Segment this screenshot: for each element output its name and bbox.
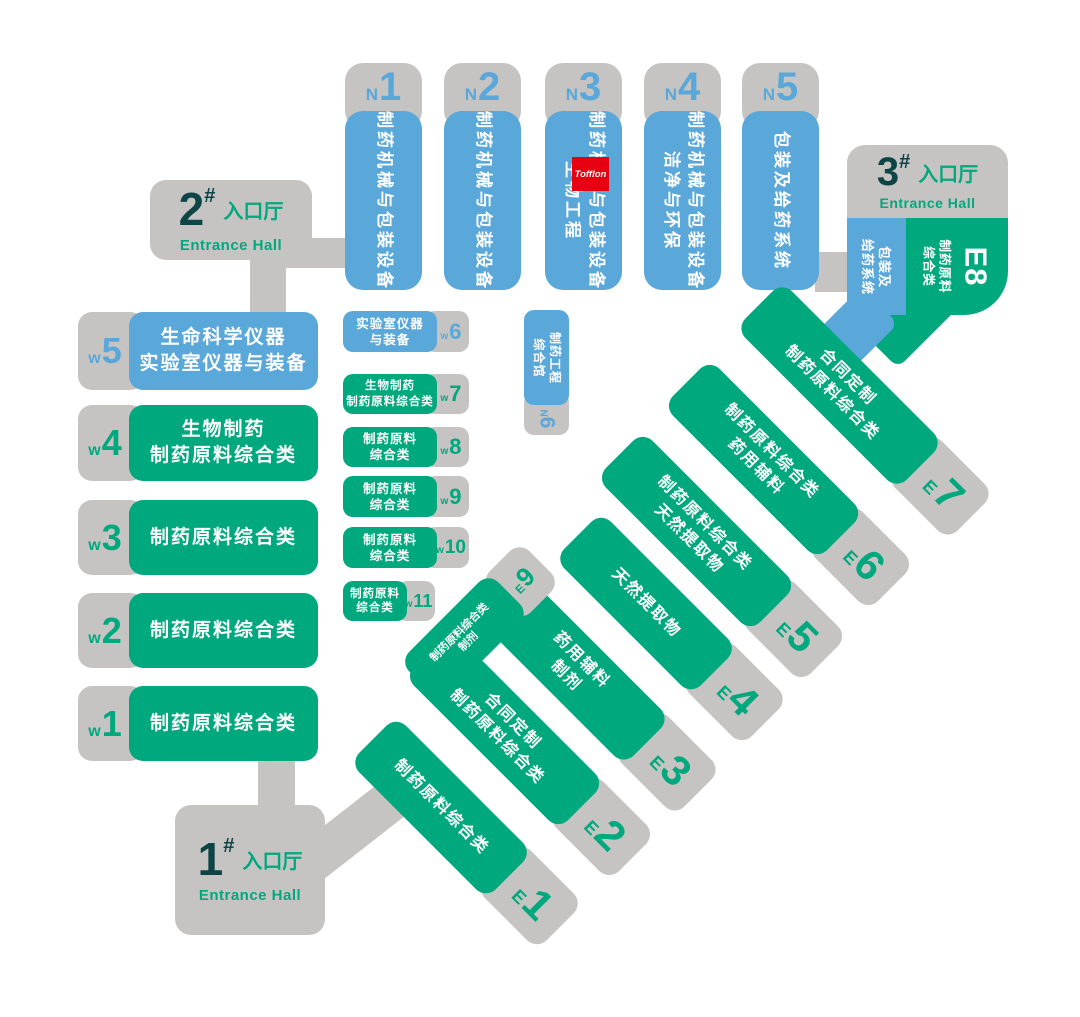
hall-w6-body: 实验室仪器与装备 [343,311,437,352]
hall-n6-body: 制药工程综合馆 [524,310,569,405]
entrance-hall-3: 3#入口厅 Entrance Hall [847,145,1008,218]
hall-w3: w3 制药原料综合类 [78,500,318,575]
hall-w2-body: 制药原料综合类 [129,593,318,668]
hall-w7: 生物制药制药原料综合类 w7 [343,374,469,414]
entrance-1-en: Entrance Hall [199,887,301,904]
hall-w10: 制药原料综合类 w10 [343,527,469,568]
entrance-1-hash: # [223,836,234,856]
hall-n2-body: 制药机械与包装设备 [444,111,521,290]
entrance-1-number: 1 [198,836,224,882]
entrance-2-cn: 入口厅 [223,202,283,222]
entrance-1-cn: 入口厅 [242,852,302,872]
entrance-3-number: 3 [877,152,899,192]
hall-w4-body: 生物制药制药原料综合类 [129,405,318,481]
hall-w5-body: 生命科学仪器实验室仪器与装备 [129,312,318,390]
hall-w4: w4 生物制药制药原料综合类 [78,405,318,481]
entrance-hall-1: 1#入口厅 Entrance Hall [175,805,325,935]
hall-e8-body: E8 制药原料综合类 [906,218,1008,315]
hall-w8-body: 制药原料综合类 [343,427,437,467]
hall-n4: N4 制药机械与包装设备洁净与环保 [644,63,721,290]
hall-e8-label: E8 [957,247,993,287]
hall-w5: w5 生命科学仪器实验室仪器与装备 [78,312,318,390]
tofflon-logo: Tofflon [572,157,609,191]
hall-n1: N1 制药机械与包装设备 [345,63,422,290]
hall-w1: w1 制药原料综合类 [78,686,318,761]
entrance-2-en: Entrance Hall [180,237,282,254]
hall-n3: N3 制药机械与包装设备生物工程 Tofflon [545,63,622,290]
exhibition-floor-plan: N1 制药机械与包装设备 N2 制药机械与包装设备 N3 制药机械与包装设备生物… [0,0,1080,1017]
hall-n5: N5 包装及给药系统 [742,63,819,290]
entrance-hall-2: 2#入口厅 Entrance Hall [150,180,312,260]
connector-w1-entrance1 [258,757,295,810]
hall-n5-body: 包装及给药系统 [742,111,819,290]
hall-n1-body: 制药机械与包装设备 [345,111,422,290]
hall-w2: w2 制药原料综合类 [78,593,318,668]
hall-w6: 实验室仪器与装备 w6 [343,311,469,352]
hall-n6: 制药工程综合馆 N6 [524,310,569,435]
hall-n4-body: 制药机械与包装设备洁净与环保 [644,111,721,290]
entrance-2-number: 2 [179,186,205,232]
hall-w9-body: 制药原料综合类 [343,476,437,517]
hall-w11-body: 制药原料综合类 [343,581,407,621]
hall-w3-body: 制药原料综合类 [129,500,318,575]
hall-w8: 制药原料综合类 w8 [343,427,469,467]
entrance-2-hash: # [204,186,215,206]
hall-w7-body: 生物制药制药原料综合类 [343,374,437,414]
hall-n2: N2 制药机械与包装设备 [444,63,521,290]
hall-e8: 3#入口厅 Entrance Hall 包装及给药系统 E8 制药原料综合类 [847,145,1008,315]
hall-w10-body: 制药原料综合类 [343,527,437,568]
hall-n3-body: 制药机械与包装设备生物工程 Tofflon [545,111,622,290]
entrance-3-hash: # [899,152,910,172]
hall-w11: 制药原料综合类 w11 [343,581,435,621]
entrance-3-en: Entrance Hall [880,195,976,211]
connector-n5-entrance3 [815,252,849,292]
hall-e8-packaging-strip: 包装及给药系统 [847,218,906,315]
entrance-3-cn: 入口厅 [918,165,978,185]
hall-w1-body: 制药原料综合类 [129,686,318,761]
hall-w9: 制药原料综合类 w9 [343,476,469,517]
